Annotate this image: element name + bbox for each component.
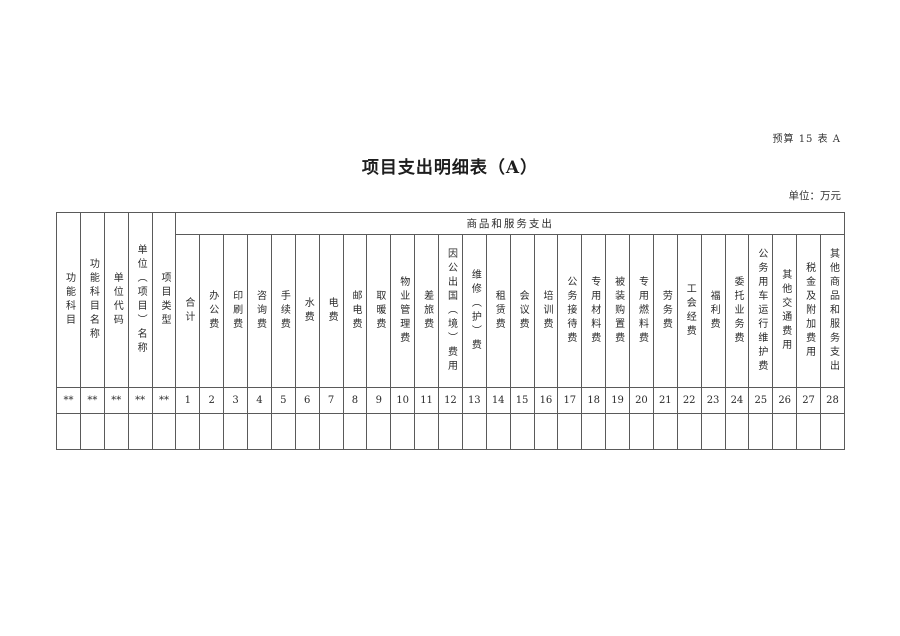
expense-column-header-cell: 维修（护）费 [462, 235, 486, 388]
expense-column-header-cell: 咨询费 [248, 235, 272, 388]
empty-data-cell [295, 414, 319, 450]
empty-data-cell [80, 414, 104, 450]
column-code-cell: 26 [773, 388, 797, 414]
expense-column-header-label: 被装购置费 [613, 276, 623, 346]
expense-column-header-label: 其他交通费用 [780, 269, 790, 353]
fixed-column-header-label: 单位（项目）名称 [135, 244, 145, 356]
expense-column-header-label: 印刷费 [231, 290, 241, 332]
expense-column-header-cell: 取暖费 [367, 235, 391, 388]
expense-column-header-cell: 工会经费 [677, 235, 701, 388]
column-code-cell: 5 [271, 388, 295, 414]
expense-column-header-cell: 租赁费 [486, 235, 510, 388]
expense-column-header-cell: 培训费 [534, 235, 558, 388]
column-code-cell: ** [128, 388, 152, 414]
column-code-cell: 11 [415, 388, 439, 414]
fixed-column-header-cell: 项目类型 [152, 213, 176, 388]
fixed-column-header-cell: 单位代码 [104, 213, 128, 388]
fixed-column-header-label: 项目类型 [159, 272, 169, 328]
expense-column-header-cell: 手续费 [271, 235, 295, 388]
expense-column-header-cell: 差旅费 [415, 235, 439, 388]
empty-data-cell [319, 414, 343, 450]
column-code-cell: 20 [630, 388, 654, 414]
empty-data-cell [367, 414, 391, 450]
empty-data-cell [677, 414, 701, 450]
column-code-cell: 17 [558, 388, 582, 414]
empty-data-cell [725, 414, 749, 450]
expense-column-header-cell: 因公出国（境）费用 [439, 235, 463, 388]
column-code-cell: 3 [224, 388, 248, 414]
column-code-cell: 1 [176, 388, 200, 414]
empty-data-cell [224, 414, 248, 450]
empty-data-cell [439, 414, 463, 450]
empty-data-cell [486, 414, 510, 450]
expense-column-header-label: 邮电费 [350, 290, 360, 332]
column-code-cell: ** [152, 388, 176, 414]
empty-data-cell [176, 414, 200, 450]
empty-data-cell [57, 414, 81, 450]
empty-data-cell [248, 414, 272, 450]
expense-column-header-label: 水费 [302, 297, 312, 325]
expense-column-header-label: 劳务费 [660, 290, 670, 332]
column-code-cell: 9 [367, 388, 391, 414]
expense-column-header-label: 公务接待费 [565, 276, 575, 346]
expense-column-header-label: 电费 [326, 297, 336, 325]
empty-data-cell [152, 414, 176, 450]
column-code-cell: 6 [295, 388, 319, 414]
empty-data-cell [558, 414, 582, 450]
column-code-cell: 15 [510, 388, 534, 414]
code-row: **********123456789101112131415161718192… [57, 388, 845, 414]
expense-column-header-cell: 邮电费 [343, 235, 367, 388]
expense-column-header-label: 手续费 [278, 290, 288, 332]
expense-column-header-label: 培训费 [541, 290, 551, 332]
column-code-cell: ** [57, 388, 81, 414]
column-code-cell: 8 [343, 388, 367, 414]
expense-column-header-cell: 物业管理费 [391, 235, 415, 388]
expense-column-header-label: 专用材料费 [589, 276, 599, 346]
unit-note: 单位：万元 [789, 188, 842, 203]
expense-column-header-label: 咨询费 [254, 290, 264, 332]
empty-data-cell [415, 414, 439, 450]
expense-column-header-cell: 被装购置费 [606, 235, 630, 388]
fixed-column-header-label: 功能科目名称 [87, 258, 97, 342]
expense-column-header-label: 物业管理费 [398, 276, 408, 346]
column-code-cell: 16 [534, 388, 558, 414]
column-code-cell: ** [80, 388, 104, 414]
column-code-cell: 4 [248, 388, 272, 414]
empty-data-cell [606, 414, 630, 450]
empty-data-cell [200, 414, 224, 450]
empty-data-cell [534, 414, 558, 450]
column-code-cell: 12 [439, 388, 463, 414]
column-code-cell: 19 [606, 388, 630, 414]
empty-data-cell [271, 414, 295, 450]
expense-column-header-label: 专用燃料费 [636, 276, 646, 346]
empty-data-cell [391, 414, 415, 450]
expense-column-header-cell: 印刷费 [224, 235, 248, 388]
expense-column-header-label: 其他商品和服务支出 [828, 248, 838, 374]
column-code-cell: 7 [319, 388, 343, 414]
expense-column-header-label: 税金及附加费用 [804, 262, 814, 360]
expense-column-header-cell: 公务接待费 [558, 235, 582, 388]
expense-column-header-cell: 专用材料费 [582, 235, 606, 388]
expense-column-header-cell: 福利费 [701, 235, 725, 388]
empty-data-cell [104, 414, 128, 450]
empty-data-cell [773, 414, 797, 450]
empty-data-cell [343, 414, 367, 450]
expense-column-header-cell: 合计 [176, 235, 200, 388]
column-code-cell: 14 [486, 388, 510, 414]
column-code-cell: 10 [391, 388, 415, 414]
column-code-cell: 22 [677, 388, 701, 414]
expense-column-header-label: 因公出国（境）费用 [445, 248, 455, 374]
empty-row [57, 414, 845, 450]
column-code-cell: ** [104, 388, 128, 414]
expense-column-header-label: 会议费 [517, 290, 527, 332]
fixed-column-header-cell: 功能科目 [57, 213, 81, 388]
column-code-cell: 13 [462, 388, 486, 414]
empty-data-cell [510, 414, 534, 450]
expense-column-header-cell: 其他商品和服务支出 [821, 235, 845, 388]
fixed-column-header-cell: 单位（项目）名称 [128, 213, 152, 388]
expense-column-header-cell: 公务用车运行维护费 [749, 235, 773, 388]
header-row-1: 功能科目功能科目名称单位代码单位（项目）名称项目类型商品和服务支出 [57, 213, 845, 235]
empty-data-cell [821, 414, 845, 450]
expenditure-table: 功能科目功能科目名称单位代码单位（项目）名称项目类型商品和服务支出 合计办公费印… [56, 212, 845, 450]
empty-data-cell [128, 414, 152, 450]
expense-column-header-label: 公务用车运行维护费 [756, 248, 766, 374]
expense-column-header-cell: 会议费 [510, 235, 534, 388]
fixed-column-header-label: 功能科目 [63, 272, 73, 328]
fixed-column-header-cell: 功能科目名称 [80, 213, 104, 388]
expense-column-header-cell: 电费 [319, 235, 343, 388]
empty-data-cell [749, 414, 773, 450]
expense-column-header-cell: 劳务费 [653, 235, 677, 388]
column-code-cell: 28 [821, 388, 845, 414]
expense-column-header-cell: 专用燃料费 [630, 235, 654, 388]
empty-data-cell [462, 414, 486, 450]
empty-data-cell [797, 414, 821, 450]
column-code-cell: 23 [701, 388, 725, 414]
column-code-cell: 24 [725, 388, 749, 414]
expense-column-header-label: 合计 [183, 297, 193, 325]
expense-column-header-label: 工会经费 [684, 283, 694, 339]
empty-data-cell [630, 414, 654, 450]
expense-column-header-cell: 办公费 [200, 235, 224, 388]
column-code-cell: 25 [749, 388, 773, 414]
expense-column-header-cell: 其他交通费用 [773, 235, 797, 388]
empty-data-cell [582, 414, 606, 450]
expense-column-header-cell: 水费 [295, 235, 319, 388]
expense-column-header-label: 福利费 [708, 290, 718, 332]
expense-column-header-label: 租赁费 [493, 290, 503, 332]
doc-ref: 预算 15 表 A [773, 130, 841, 145]
group-header-cell: 商品和服务支出 [176, 213, 845, 235]
column-code-cell: 18 [582, 388, 606, 414]
expense-column-header-label: 维修（护）费 [469, 269, 479, 353]
expense-column-header-label: 差旅费 [422, 290, 432, 332]
column-code-cell: 21 [653, 388, 677, 414]
expense-column-header-label: 取暖费 [374, 290, 384, 332]
document-page: 预算 15 表 A 项目支出明细表（A） 单位：万元 功能科目功能科目名称单位代… [0, 0, 900, 636]
expense-column-header-label: 办公费 [207, 290, 217, 332]
empty-data-cell [701, 414, 725, 450]
column-code-cell: 27 [797, 388, 821, 414]
empty-data-cell [653, 414, 677, 450]
page-title: 项目支出明细表（A） [0, 153, 900, 178]
column-code-cell: 2 [200, 388, 224, 414]
expense-column-header-cell: 委托业务费 [725, 235, 749, 388]
fixed-column-header-label: 单位代码 [111, 272, 121, 328]
expense-column-header-label: 委托业务费 [732, 276, 742, 346]
expense-column-header-cell: 税金及附加费用 [797, 235, 821, 388]
